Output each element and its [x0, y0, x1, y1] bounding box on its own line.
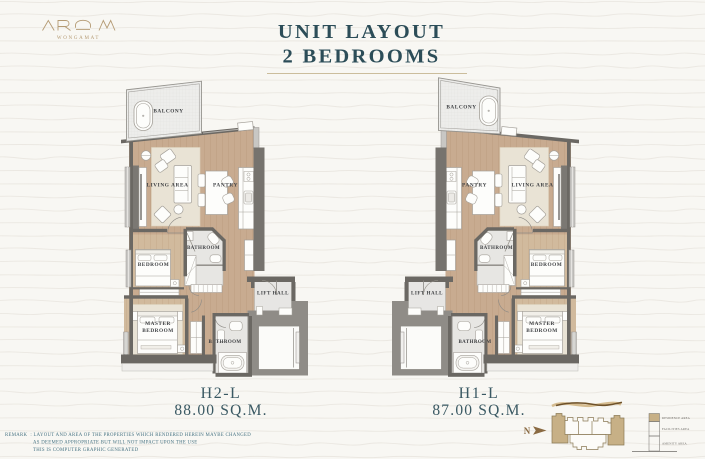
- svg-text:MASTER: MASTER: [529, 321, 555, 327]
- svg-text:AMENITY AREA: AMENITY AREA: [662, 442, 688, 446]
- svg-text:MASTER: MASTER: [145, 321, 171, 327]
- svg-text:88.00 SQ.M.: 88.00 SQ.M.: [174, 402, 267, 419]
- svg-text:LIFT HALL: LIFT HALL: [411, 291, 443, 297]
- svg-text:BATHROOM: BATHROOM: [187, 246, 220, 251]
- svg-text:AS DEEMED APPROPRIATE BUT WILL: AS DEEMED APPROPRIATE BUT WILL NOT IMPAC…: [33, 441, 198, 446]
- svg-text:BEDROOM: BEDROOM: [526, 328, 557, 334]
- svg-text:BALCONY: BALCONY: [153, 109, 183, 115]
- svg-text:H1-L: H1-L: [459, 385, 500, 402]
- svg-text:BEDROOM: BEDROOM: [531, 262, 562, 268]
- svg-text:PANTRY: PANTRY: [213, 183, 238, 189]
- svg-text:FACILITIES AREA: FACILITIES AREA: [662, 427, 690, 431]
- svg-text:H2-L: H2-L: [201, 385, 242, 402]
- svg-text:BEDROOM: BEDROOM: [138, 262, 169, 268]
- svg-text:PANTRY: PANTRY: [462, 183, 487, 189]
- svg-text:2 BEDROOMS: 2 BEDROOMS: [283, 46, 441, 68]
- svg-text:LIVING AREA: LIVING AREA: [146, 183, 188, 189]
- svg-text:RESIDENCE AREA: RESIDENCE AREA: [662, 416, 691, 420]
- svg-text:LIFT HALL: LIFT HALL: [257, 291, 289, 297]
- svg-text:N: N: [524, 426, 531, 436]
- svg-text:LIVING AREA: LIVING AREA: [511, 183, 553, 189]
- svg-text:BALCONY: BALCONY: [446, 105, 476, 111]
- svg-text:THIS IS COMPUTER GRAPHIC GENER: THIS IS COMPUTER GRAPHIC GENERATED: [33, 448, 139, 453]
- svg-text:WONGAMAT: WONGAMAT: [57, 36, 100, 41]
- svg-text:BEDROOM: BEDROOM: [142, 328, 173, 334]
- svg-text:UNIT LAYOUT: UNIT LAYOUT: [278, 21, 445, 43]
- svg-text:REMARK : LAYOUT AND AREA OF T: REMARK : LAYOUT AND AREA OF THE PROPERTI…: [5, 433, 251, 438]
- svg-text:BATHROOM: BATHROOM: [480, 246, 513, 251]
- svg-text:87.00 SQ.M.: 87.00 SQ.M.: [432, 402, 525, 419]
